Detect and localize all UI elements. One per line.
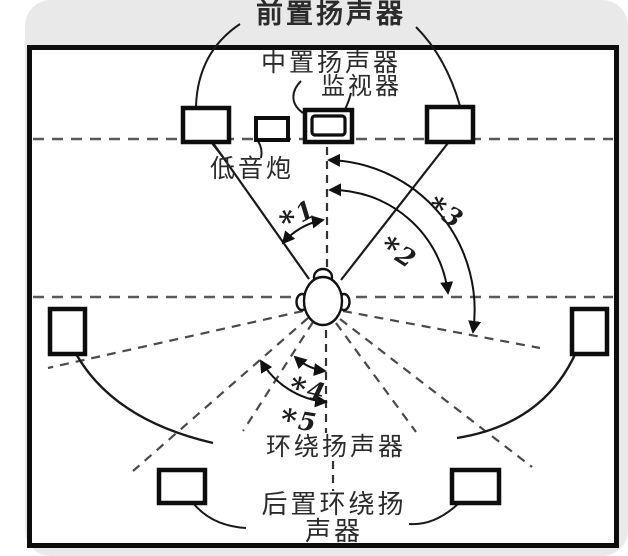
- front-right-speaker-box: [427, 107, 473, 142]
- surround-left-speaker-box: [50, 309, 85, 354]
- front-left-speaker-box: [183, 108, 229, 142]
- rear-right-speaker-box: [452, 470, 499, 503]
- surround-right-speaker-box: [572, 309, 607, 354]
- monitor-box: [312, 116, 345, 135]
- head-outline: [304, 277, 342, 325]
- subwoofer-label: 低音炮: [210, 156, 294, 182]
- angle-marker-5: *5: [278, 399, 319, 439]
- subwoofer-box: [256, 118, 288, 140]
- monitor-label: 监视器: [321, 74, 402, 99]
- speaker-placement-diagram: 前置扬声器 中置扬声器 监视器 低音炮 环绕扬声器 后置环绕扬 声器 *1 *2…: [0, 0, 628, 556]
- rear-surround-label-line2: 声器: [256, 519, 412, 546]
- rear-surround-label-line1: 后置环绕扬: [256, 492, 412, 519]
- front-speakers-label: 前置扬声器: [256, 1, 406, 29]
- rear-surround-speakers-label: 后置环绕扬 声器: [256, 492, 412, 547]
- rear-left-speaker-box: [159, 470, 205, 503]
- diagram-canvas: [0, 0, 628, 556]
